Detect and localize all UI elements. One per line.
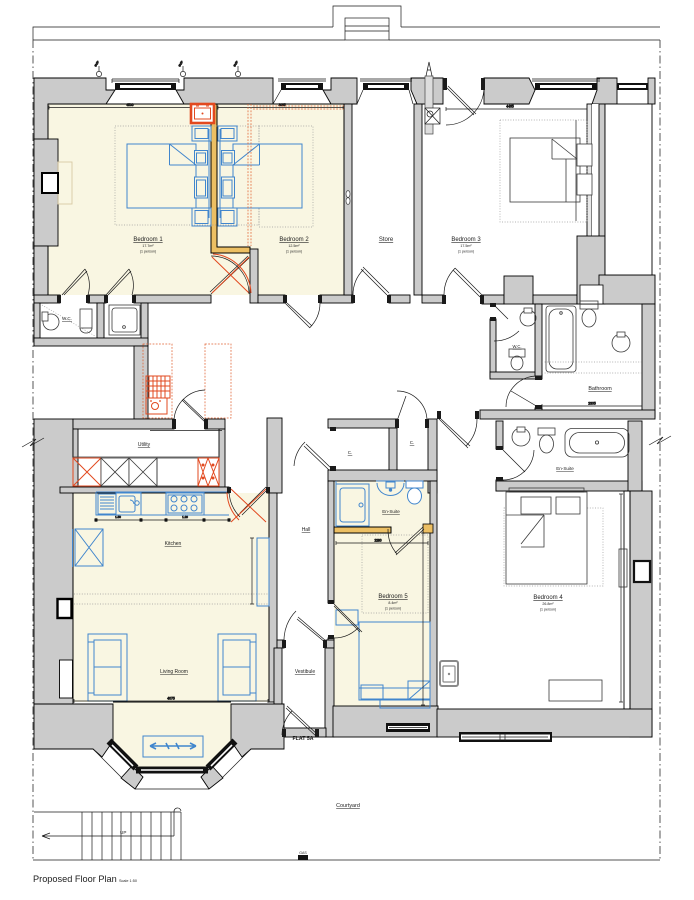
svg-text:Kitchen: Kitchen [165, 541, 182, 547]
svg-text:1.50: 1.50 [115, 515, 121, 519]
svg-text:Scale 1:50: Scale 1:50 [119, 879, 137, 883]
svg-text:GAS: GAS [299, 851, 307, 855]
svg-text:4500: 4500 [126, 103, 133, 107]
svg-text:Living Room: Living Room [160, 669, 188, 675]
svg-text:Bedroom 4: Bedroom 4 [533, 595, 563, 601]
svg-text:4465: 4465 [506, 105, 514, 109]
svg-text:C.: C. [348, 450, 353, 455]
svg-text:W.C.: W.C. [512, 344, 521, 349]
svg-text:1.20: 1.20 [182, 515, 188, 519]
svg-text:Courtyard: Courtyard [336, 803, 360, 809]
svg-text:Hall: Hall [302, 527, 311, 533]
svg-text:12.5m²: 12.5m² [288, 244, 300, 248]
svg-text:17.7m²: 17.7m² [142, 244, 154, 248]
svg-text:(1 person): (1 person) [458, 250, 474, 254]
svg-text:Bedroom 3: Bedroom 3 [451, 237, 481, 243]
svg-text:3085: 3085 [278, 103, 285, 107]
svg-text:W.C.: W.C. [62, 316, 72, 321]
svg-text:(1 person): (1 person) [286, 250, 302, 254]
svg-text:(1 person): (1 person) [540, 608, 556, 612]
svg-text:C.: C. [410, 440, 415, 445]
svg-text:Bedroom 2: Bedroom 2 [279, 237, 309, 243]
svg-text:17.5m²: 17.5m² [460, 244, 472, 248]
svg-text:FLAT 5A: FLAT 5A [293, 736, 314, 742]
svg-text:Bedroom 5: Bedroom 5 [378, 594, 408, 600]
svg-text:26.8m²: 26.8m² [542, 602, 554, 606]
svg-text:8.4m²: 8.4m² [388, 601, 398, 605]
svg-text:2305: 2305 [588, 402, 596, 406]
svg-text:Bathroom: Bathroom [588, 386, 612, 392]
svg-text:(1 person): (1 person) [385, 607, 401, 611]
svg-text:(1 person): (1 person) [140, 250, 156, 254]
svg-text:Utility: Utility [138, 442, 151, 448]
svg-text:UP: UP [120, 830, 126, 835]
svg-text:En-Suite: En-Suite [382, 509, 400, 514]
svg-text:Bedroom 1: Bedroom 1 [133, 237, 163, 243]
svg-text:Vestibule: Vestibule [295, 669, 316, 675]
svg-text:2280: 2280 [374, 539, 381, 543]
svg-text:4075: 4075 [167, 697, 175, 701]
svg-text:Store: Store [379, 237, 394, 243]
svg-text:Proposed Floor Plan: Proposed Floor Plan [33, 874, 117, 884]
svg-text:En-Suite: En-Suite [556, 466, 574, 471]
